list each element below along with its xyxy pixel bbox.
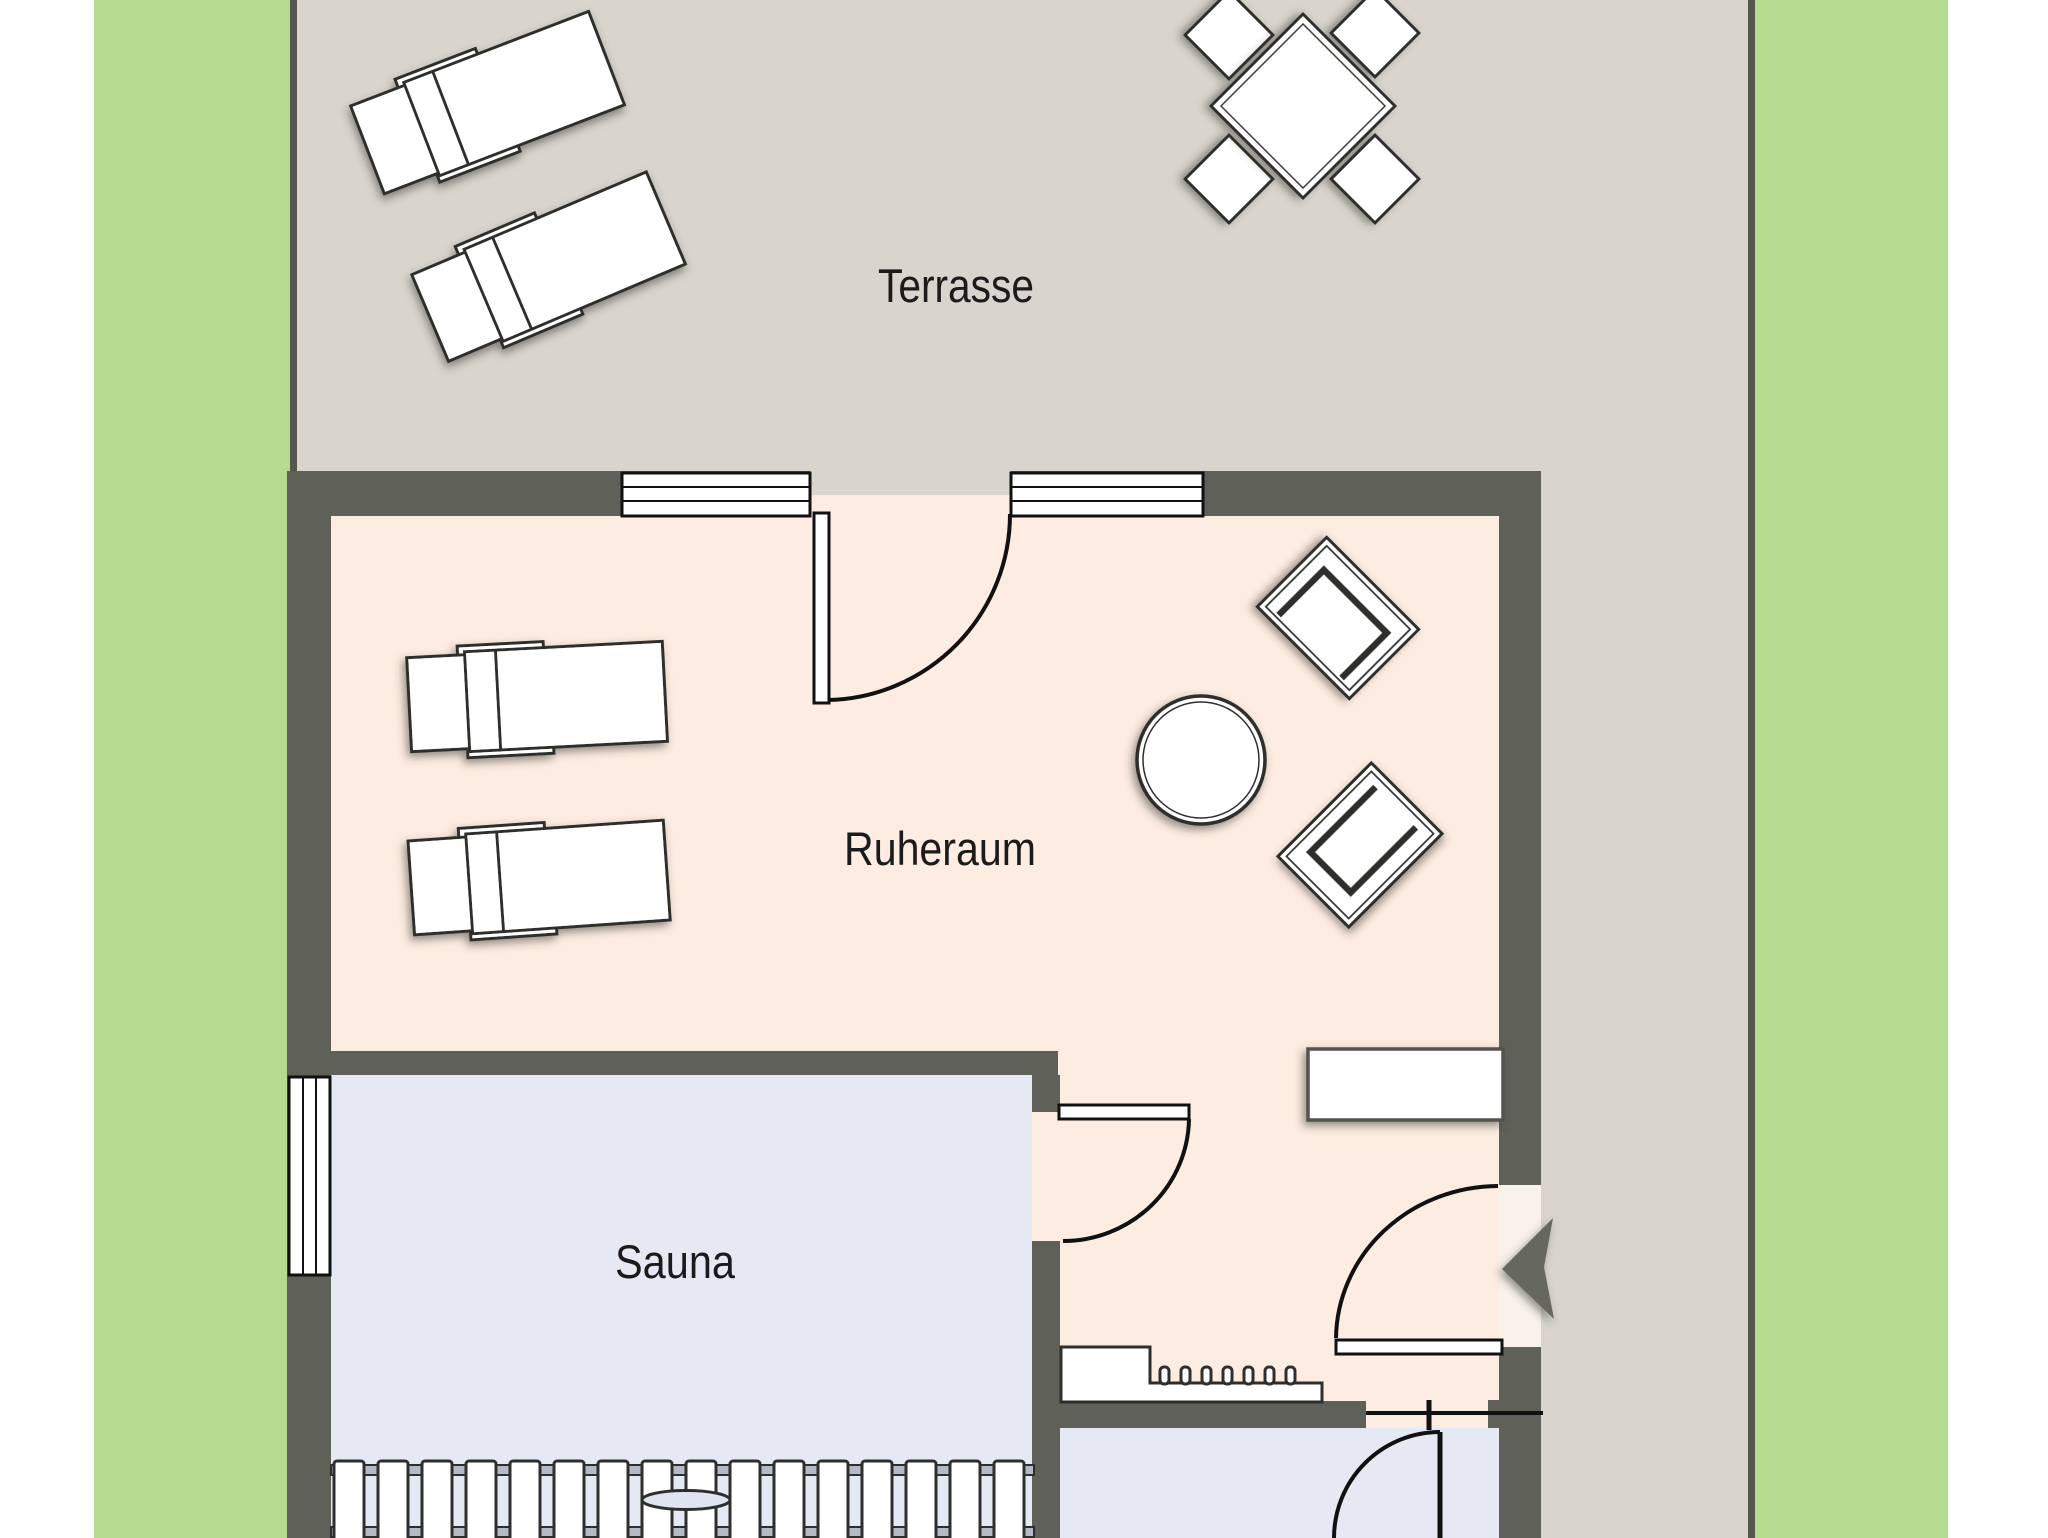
svg-text:Ruheraum: Ruheraum xyxy=(844,822,1036,875)
svg-text:Terrasse: Terrasse xyxy=(878,259,1034,312)
svg-text:Sauna: Sauna xyxy=(615,1235,736,1288)
